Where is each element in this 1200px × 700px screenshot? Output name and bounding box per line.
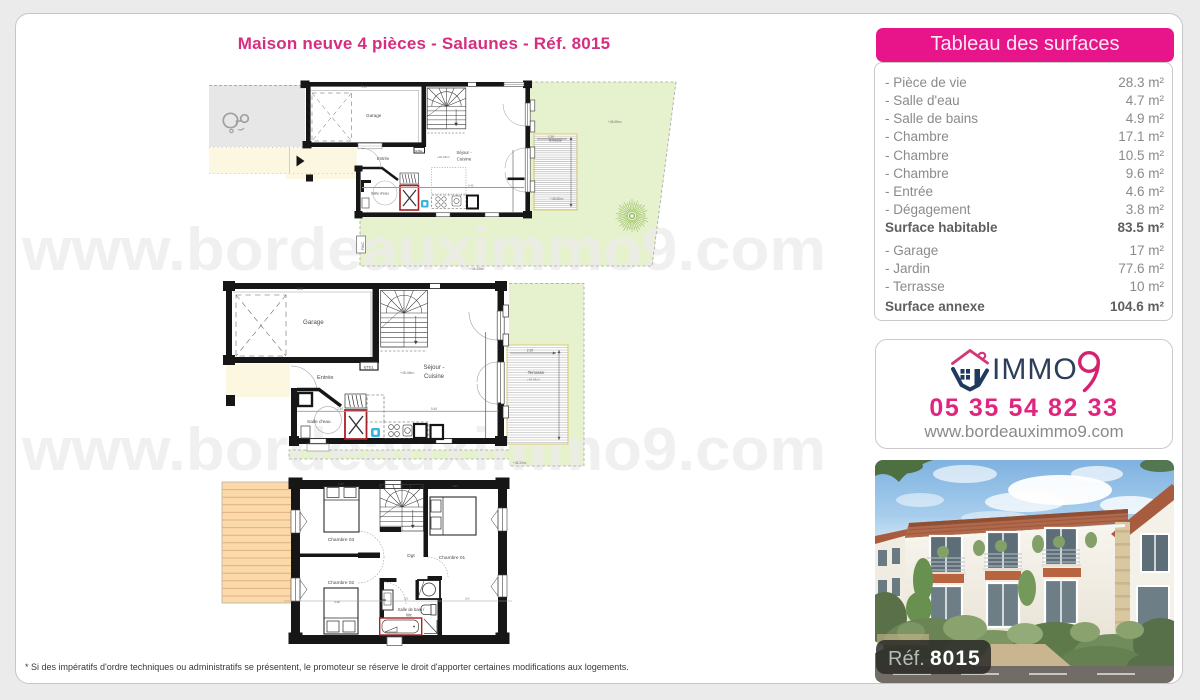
- svg-text:Chambre 03: Chambre 03: [328, 537, 355, 543]
- svg-text:Séjour -: Séjour -: [423, 365, 444, 371]
- svg-text:5.40: 5.40: [431, 407, 437, 411]
- svg-text:+48.48m²: +48.48m²: [437, 155, 450, 159]
- svg-text:5.90: 5.90: [361, 85, 367, 89]
- svg-text:Séjour -: Séjour -: [456, 150, 472, 155]
- svg-text:+48.48m²: +48.48m²: [527, 378, 540, 382]
- svg-text:Salle d'eau: Salle d'eau: [371, 192, 389, 196]
- svg-text:ETEL: ETEL: [415, 149, 423, 153]
- svg-text:Salle de bain /: Salle de bain /: [398, 607, 425, 612]
- svg-text:Garage: Garage: [366, 113, 382, 118]
- svg-text:Wc: Wc: [406, 613, 412, 618]
- svg-text:2x1: 2x1: [404, 597, 409, 601]
- svg-text:Entrée: Entrée: [377, 156, 390, 161]
- svg-text:Entrée: Entrée: [317, 375, 333, 381]
- svg-text:Chambre 02: Chambre 02: [328, 580, 355, 586]
- svg-text:2.20: 2.20: [548, 135, 554, 139]
- svg-text:Dgt: Dgt: [407, 553, 415, 559]
- svg-text:5.40: 5.40: [468, 183, 474, 187]
- svg-text:Garage: Garage: [303, 319, 324, 326]
- svg-text:5.90: 5.90: [297, 287, 303, 291]
- svg-text:Réf.: Réf.: [888, 648, 925, 670]
- svg-text:Cuisine: Cuisine: [424, 374, 445, 380]
- svg-text:Terrasse: Terrasse: [528, 370, 545, 375]
- svg-text:+48.68m²: +48.68m²: [608, 120, 622, 124]
- svg-text:www.bordeauximmo9.com: www.bordeauximmo9.com: [21, 216, 826, 283]
- svg-text:2.40: 2.40: [337, 407, 343, 411]
- svg-text:2.93: 2.93: [452, 484, 458, 488]
- svg-text:Salle d'eau: Salle d'eau: [307, 419, 331, 425]
- svg-text:+48.33m²: +48.33m²: [513, 461, 527, 465]
- svg-text:2x6: 2x6: [465, 597, 470, 601]
- svg-text:IMMO: IMMO: [992, 353, 1078, 386]
- svg-text:3.30: 3.30: [338, 482, 344, 486]
- svg-text:+48.68m²: +48.68m²: [550, 197, 564, 201]
- svg-text:+48.48m²: +48.48m²: [400, 371, 415, 375]
- svg-text:8015: 8015: [930, 647, 981, 670]
- svg-text:2.20: 2.20: [527, 349, 534, 353]
- svg-text:Cuisine: Cuisine: [457, 157, 472, 162]
- svg-text:3.28: 3.28: [334, 600, 340, 604]
- svg-text:PAC: PAC: [360, 242, 365, 250]
- svg-text:ETEL: ETEL: [364, 364, 375, 369]
- svg-text:Chambre 01: Chambre 01: [439, 555, 466, 561]
- svg-text:+48.33m²: +48.33m²: [470, 267, 484, 271]
